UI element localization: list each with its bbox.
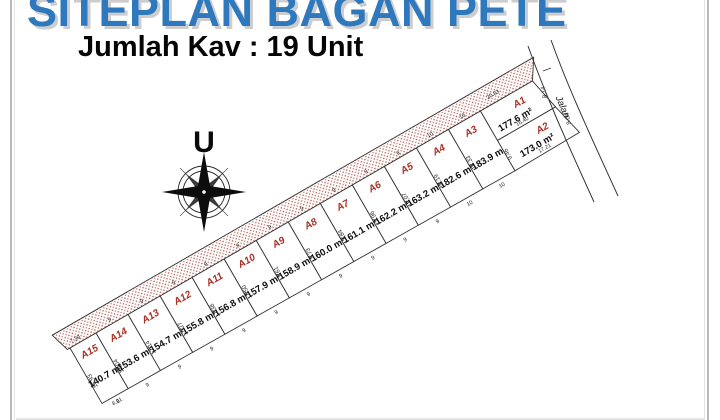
plot-band: 20.83A3183.9 m²18.331010A4182.6 m²18.191…: [52, 55, 587, 420]
plot-A9-width-bottom-label: 9: [306, 291, 312, 298]
plot-A8-width-bottom-label: 9: [338, 273, 344, 280]
plot-A3-width-bottom-label: 10: [498, 182, 506, 190]
plot-A11-width-bottom-label: 9: [242, 328, 248, 335]
plot-A12-width-bottom-label: 9: [209, 346, 215, 353]
plot-A4-width-bottom-label: 10: [466, 200, 474, 208]
plot-A10-width-bottom-label: 9: [274, 310, 280, 317]
plot-A6-width-bottom-label: 9: [403, 237, 409, 244]
road-tick: [543, 68, 551, 71]
plot-A5-width-bottom-label: 9: [435, 219, 441, 226]
siteplan-drawing: 20.83A3183.9 m²18.331010A4182.6 m²18.191…: [0, 0, 720, 420]
plot-A13-width-bottom-label: 9: [177, 364, 183, 371]
plot-A7-width-bottom-label: 9: [371, 255, 377, 262]
plot-A15-bottom-label: 8.21: [111, 397, 123, 408]
plot-A14-width-bottom-label: 9: [145, 382, 151, 389]
